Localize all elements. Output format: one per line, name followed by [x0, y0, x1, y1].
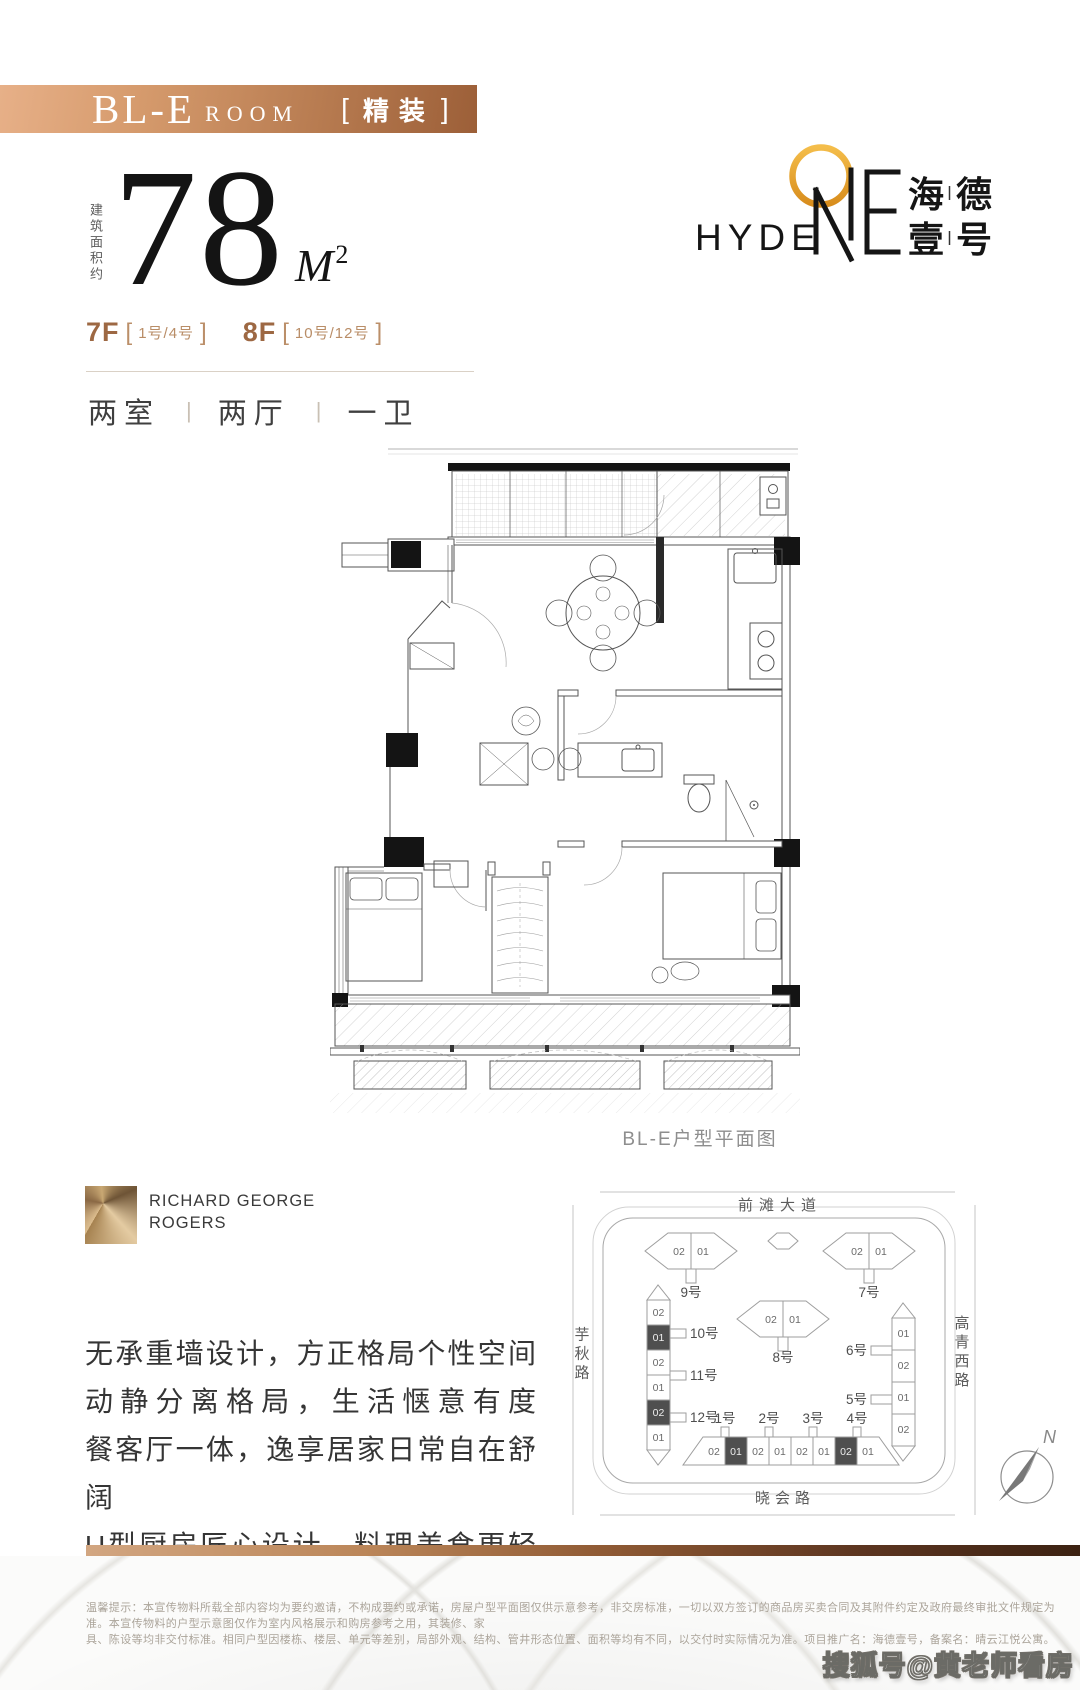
horizontal-divider — [86, 371, 474, 372]
unit-cell-label: 02 — [708, 1446, 720, 1458]
area-prefix-vertical: 建筑面积约 — [86, 203, 105, 287]
building-label-7: 7号 — [858, 1285, 879, 1300]
area-unit-superscript: 2 — [335, 240, 348, 269]
architect-name: RICHARD GEORGE ROGERS — [149, 1186, 315, 1234]
unit-cell-label: 01 — [653, 1382, 665, 1394]
building-label-8: 8号 — [772, 1350, 793, 1365]
poster-page: BL-E ROOM [ 精装 ] 建筑面积约 78 M2 7F [ 1号/4号 … — [0, 0, 1080, 1690]
bracket-close: ] — [441, 93, 449, 125]
road-top-label: 前滩大道 — [738, 1197, 822, 1214]
disclaimer: 温馨提示：本宣传物料所载全部内容均为要约邀请，不构成要约或承诺，房屋户型平面图仅… — [86, 1600, 1076, 1648]
building-label-11: 11号 — [690, 1368, 718, 1383]
unit-cell-label: 01 — [730, 1446, 742, 1458]
description-line: 餐客厅一体，逸享居家日常自在舒阔 — [85, 1426, 537, 1522]
spec-livingrooms: 两厅 — [218, 390, 290, 432]
logo-letter-e-icon — [867, 172, 898, 252]
unit-cell-label: 01 — [818, 1446, 830, 1458]
unit-cell-label: 01 — [898, 1328, 910, 1340]
road-bottom-label: 晓会路 — [755, 1490, 815, 1507]
hyde-one-logotype: HYDE 海 德 壹 号 — [697, 148, 992, 261]
watermark: 搜狐号@黄老师看房 — [823, 1644, 1074, 1683]
bracket-open: [ — [282, 319, 289, 347]
description-line: 动静分离格局，生活惬意有度 — [85, 1378, 537, 1426]
unit-cell-label: 02 — [898, 1424, 910, 1436]
building-label-6: 6号 — [846, 1343, 867, 1358]
unit-cell-label: 02 — [653, 1307, 665, 1319]
spec-separator: | — [316, 398, 322, 424]
floor-name: 8F — [243, 317, 277, 348]
logo-cn-char-2: 德 — [956, 174, 992, 215]
bracket-close: ] — [200, 319, 207, 347]
floor-item-7f: 7F [ 1号/4号 ] — [86, 317, 213, 348]
layout-specs: 两室 | 两厅 | 一卫 — [88, 390, 419, 432]
floor-plan-drawing — [330, 449, 800, 1113]
unit-cell-label: 02 — [898, 1360, 910, 1372]
road-left-label: 芋秋路 — [573, 1327, 590, 1384]
logo-cn-char-3: 壹 — [908, 219, 944, 260]
floors-row: 7F [ 1号/4号 ] 8F [ 10号/12号 ] — [86, 317, 388, 348]
unit-cell-label: 02 — [840, 1446, 852, 1458]
disclaimer-line1: 温馨提示：本宣传物料所载全部内容均为要约邀请，不构成要约或承诺，房屋户型平面图仅… — [86, 1600, 1076, 1632]
unit-cell-label: 01 — [653, 1432, 665, 1444]
architect-name-line2: ROGERS — [149, 1212, 315, 1234]
floor-units: 1号/4号 — [138, 322, 194, 343]
area-unit-letter: M — [295, 240, 333, 291]
room-label: ROOM — [205, 101, 299, 127]
type-banner: BL-E ROOM [ 精装 ] — [0, 85, 477, 133]
unit-cell-label: 02 — [653, 1357, 665, 1369]
architect-photo — [85, 1186, 137, 1244]
floor-plan — [330, 437, 800, 1117]
unit-type-label: BL-E — [92, 89, 195, 130]
floor-item-8f: 8F [ 10号/12号 ] — [243, 317, 388, 348]
unit-cell-label: 01 — [862, 1446, 874, 1458]
site-map: 前滩大道 晓会路 芋秋路 高青西路 — [565, 1185, 1080, 1533]
unit-cell-label: 01 — [875, 1246, 887, 1258]
unit-cell-label: 01 — [789, 1314, 801, 1326]
architect-name-line1: RICHARD GEORGE — [149, 1190, 315, 1212]
unit-cell-label: 01 — [898, 1392, 910, 1404]
area-unit: M2 — [295, 242, 348, 289]
spec-bathrooms: 一卫 — [347, 390, 419, 432]
building-label-3: 3号 — [802, 1411, 823, 1426]
logo-chinese-name: 海 德 壹 号 — [908, 174, 992, 260]
architect-block: RICHARD GEORGE ROGERS — [85, 1186, 315, 1244]
area-value: 78 — [113, 162, 285, 295]
building-label-5: 5号 — [846, 1392, 867, 1407]
floor-units: 10号/12号 — [295, 322, 370, 343]
building-label-9: 9号 — [680, 1285, 701, 1300]
unit-cell-label: 01 — [653, 1332, 665, 1344]
decoration-tag-text: 精装 — [363, 91, 435, 128]
unit-cell-label: 01 — [697, 1246, 709, 1258]
unit-cell-label: 02 — [752, 1446, 764, 1458]
bronze-divider-bar — [86, 1545, 1080, 1556]
logo-cn-char-4: 号 — [956, 219, 992, 260]
spec-separator: | — [186, 398, 192, 424]
building-label-10: 10号 — [690, 1326, 719, 1341]
bracket-open: [ — [126, 319, 133, 347]
bracket-close: ] — [375, 319, 382, 347]
unit-cell-label: 01 — [774, 1446, 786, 1458]
decoration-tag: [ 精装 ] — [341, 91, 449, 128]
unit-cell-label: 02 — [673, 1246, 685, 1258]
building-label-2: 2号 — [758, 1411, 779, 1426]
floor-plan-caption: BL-E户型平面图 — [580, 1124, 820, 1151]
logo-latin-prefix: HYDE — [697, 217, 822, 258]
spec-bedrooms: 两室 — [88, 390, 160, 432]
bracket-open: [ — [341, 93, 349, 125]
compass-icon: N — [999, 1427, 1057, 1503]
building-label-1: 1号 — [714, 1411, 735, 1426]
road-right-label: 高青西路 — [953, 1315, 970, 1391]
unit-cell-label: 02 — [796, 1446, 808, 1458]
floor-name: 7F — [86, 317, 120, 348]
area-block: 建筑面积约 78 M2 — [86, 162, 348, 295]
unit-cell-label: 02 — [765, 1314, 777, 1326]
unit-cell-label: 02 — [851, 1246, 863, 1258]
unit-cell-label: 02 — [653, 1407, 665, 1419]
brand-logo: HYDE 海 德 壹 号 — [697, 142, 997, 290]
description-line: 无承重墙设计，方正格局个性空间 — [85, 1330, 537, 1378]
building-label-4: 4号 — [846, 1411, 867, 1426]
compass-n-label: N — [1043, 1427, 1057, 1447]
logo-cn-char-1: 海 — [908, 174, 944, 215]
site-buildings — [645, 1233, 915, 1465]
